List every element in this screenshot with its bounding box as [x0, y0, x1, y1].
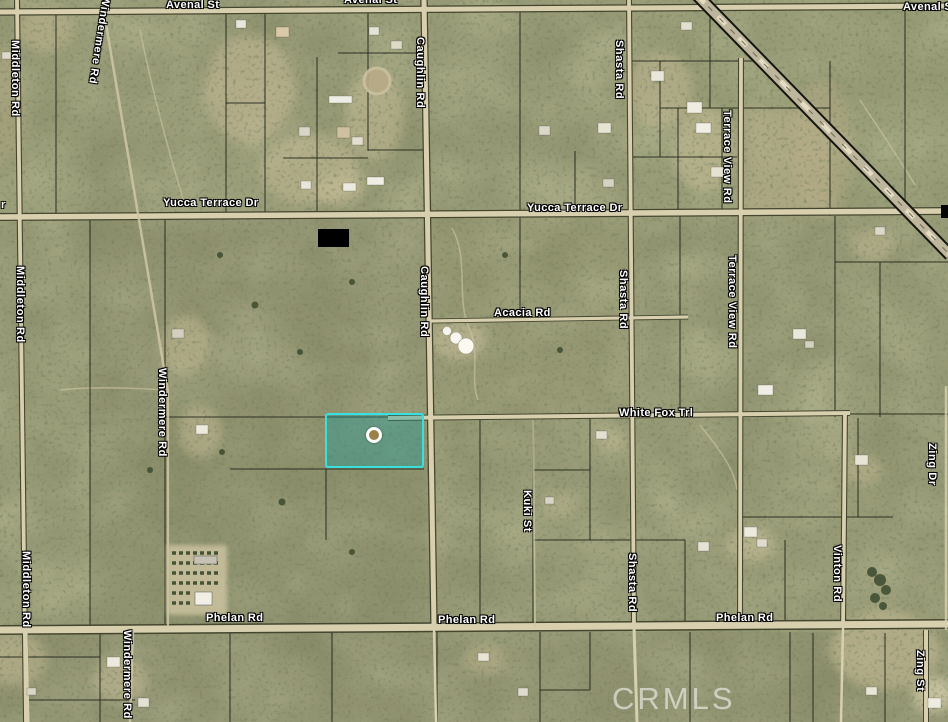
- road-label-shasta-rd: Shasta Rd: [626, 553, 638, 612]
- road-label-terrace-view-rd: Terrace View Rd: [726, 255, 738, 349]
- road-label-shasta-rd: Shasta Rd: [613, 40, 625, 99]
- road-label-avenal-st: Avenal St: [903, 1, 948, 13]
- road-label-caughlin-rd: Caughlin Rd: [418, 266, 430, 337]
- road-label-phelan-rd: Phelan Rd: [206, 612, 263, 624]
- satellite-map[interactable]: Avenal StAvenal StAvenal StYucca Terrace…: [0, 0, 948, 722]
- road-label-middleton-rd: Middleton Rd: [9, 40, 21, 117]
- watermark: CRMLS: [612, 681, 736, 717]
- orchard-farm: [167, 545, 227, 615]
- road-label-zing-dr: Zing Dr: [926, 443, 938, 486]
- parcel-marker-icon[interactable]: [366, 427, 382, 443]
- road-label-middleton-rd: Middleton Rd: [20, 551, 32, 628]
- road-label-avenal-st: Avenal St: [344, 0, 397, 6]
- road-label-phelan-rd: Phelan Rd: [438, 614, 495, 626]
- road-label-vinton-rd: Vinton Rd: [831, 545, 843, 602]
- black-rectangle: [318, 229, 349, 247]
- road-label-white-fox-trl: White Fox Trl: [619, 407, 693, 419]
- road-label-yucca-terrace-dr: Yucca Terrace Dr: [527, 202, 622, 214]
- road-label-caughlin-rd: Caughlin Rd: [414, 37, 426, 108]
- road-label-windermere-rd: Windermere Rd: [156, 368, 168, 457]
- road-label-zing-st: Zing St: [914, 650, 926, 691]
- road-label-terrace-view-rd: Terrace View Rd: [721, 110, 733, 204]
- black-edge-artifact: [941, 205, 948, 218]
- road-label-shasta-rd: Shasta Rd: [617, 270, 629, 329]
- road-label-acacia-rd: Acacia Rd: [494, 307, 551, 319]
- road-label-avenal-st: Avenal St: [166, 0, 219, 11]
- road-label-middleton-rd: Middleton Rd: [14, 266, 26, 343]
- road-label-phelan-rd: Phelan Rd: [716, 612, 773, 624]
- road-label-windermere-rd: Windermere Rd: [121, 630, 133, 719]
- road-label-yucca-terrace-dr: Yucca Terrace Dr: [163, 197, 258, 209]
- road-label-kuki-st: Kuki St: [521, 490, 533, 532]
- road-label-r: r: [1, 199, 6, 211]
